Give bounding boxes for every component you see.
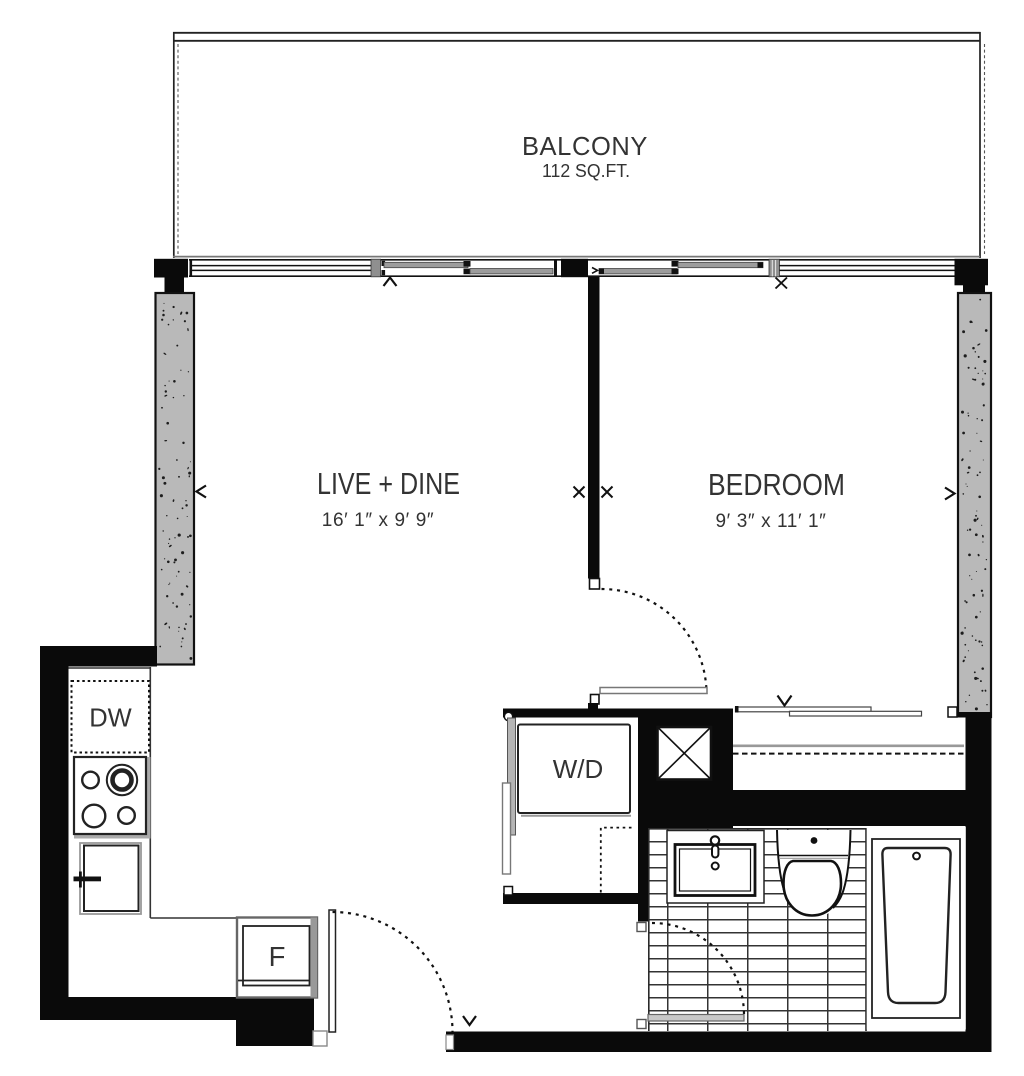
svg-text:W/D: W/D [553,754,604,784]
svg-text:16′ 1″ x 9′ 9″: 16′ 1″ x 9′ 9″ [322,510,434,531]
svg-text:9′ 3″ x 11′ 1″: 9′ 3″ x 11′ 1″ [715,511,826,532]
svg-text:DW: DW [89,705,131,733]
svg-text:112 SQ.FT.: 112 SQ.FT. [542,161,630,181]
svg-text:LIVE + DINE: LIVE + DINE [317,466,460,501]
svg-text:BEDROOM: BEDROOM [708,467,845,502]
svg-text:F: F [269,941,286,972]
svg-text:BALCONY: BALCONY [522,133,648,161]
